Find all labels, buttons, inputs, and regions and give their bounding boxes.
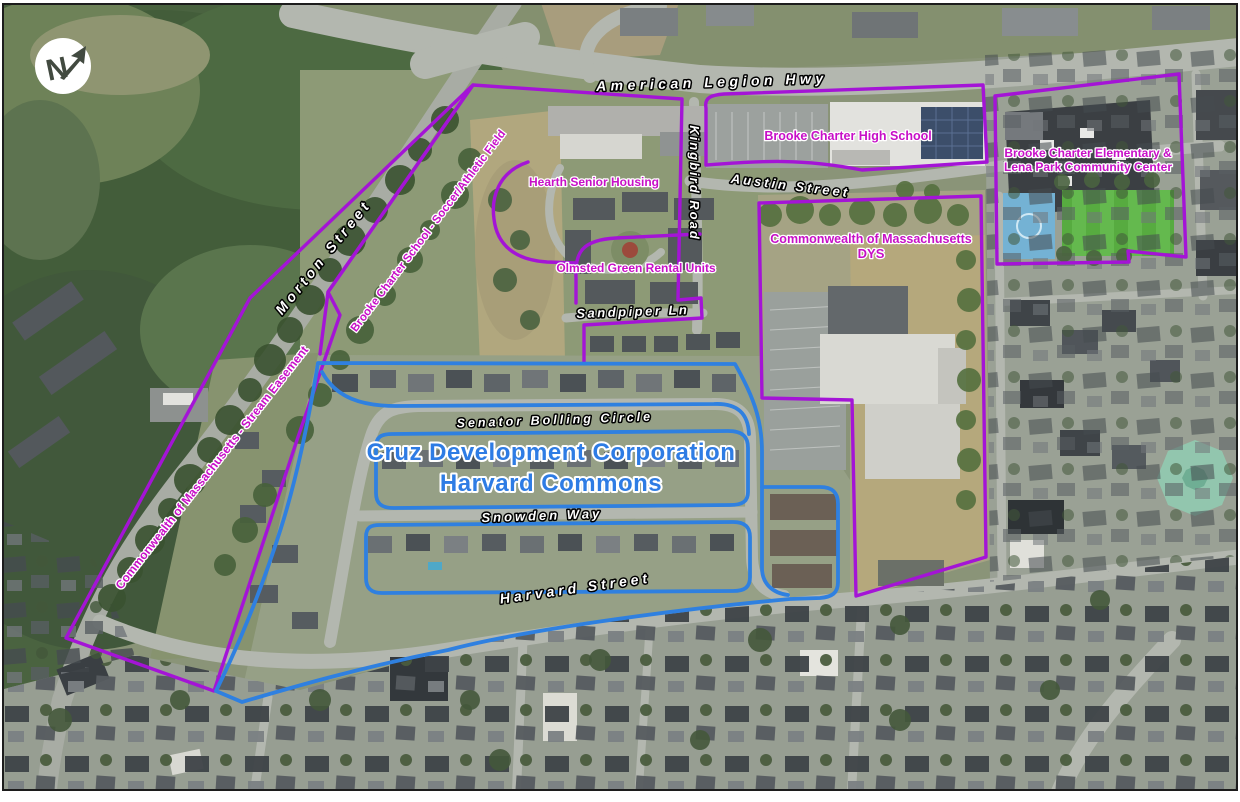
parcel-label-hearth: Hearth Senior Housing [529, 175, 659, 189]
parcel-label-olmsted: Olmsted Green Rental Units [556, 261, 716, 275]
townhouses-east [770, 494, 838, 588]
parcel-label-high-school: Brooke Charter High School [764, 129, 931, 143]
swimming-pool [428, 562, 442, 570]
parcel-label-elementary-line1: Brooke Charter Elementary & [1004, 146, 1172, 160]
dys-building-north-wing [828, 286, 908, 334]
development-label-line1: Cruz Development Corporation [367, 439, 736, 466]
parcel-label-elementary-line2: Lena Park Community Center [1004, 160, 1172, 174]
aerial-map: American Legion Hwy Morton Street Kingbi… [0, 0, 1240, 802]
street-label-kingbird-road: Kingbird Road [687, 125, 702, 241]
map-content: American Legion Hwy Morton Street Kingbi… [0, 0, 1240, 802]
map-page: American Legion Hwy Morton Street Kingbi… [0, 0, 1240, 802]
parcel-label-dys-line2: DYS [858, 246, 885, 261]
north-arrow: N [35, 38, 91, 94]
development-label-line2: Harvard Commons [440, 470, 662, 497]
dys-building-main [820, 334, 955, 404]
parcel-label-dys-line1: Commonwealth of Massachusetts [770, 232, 971, 246]
